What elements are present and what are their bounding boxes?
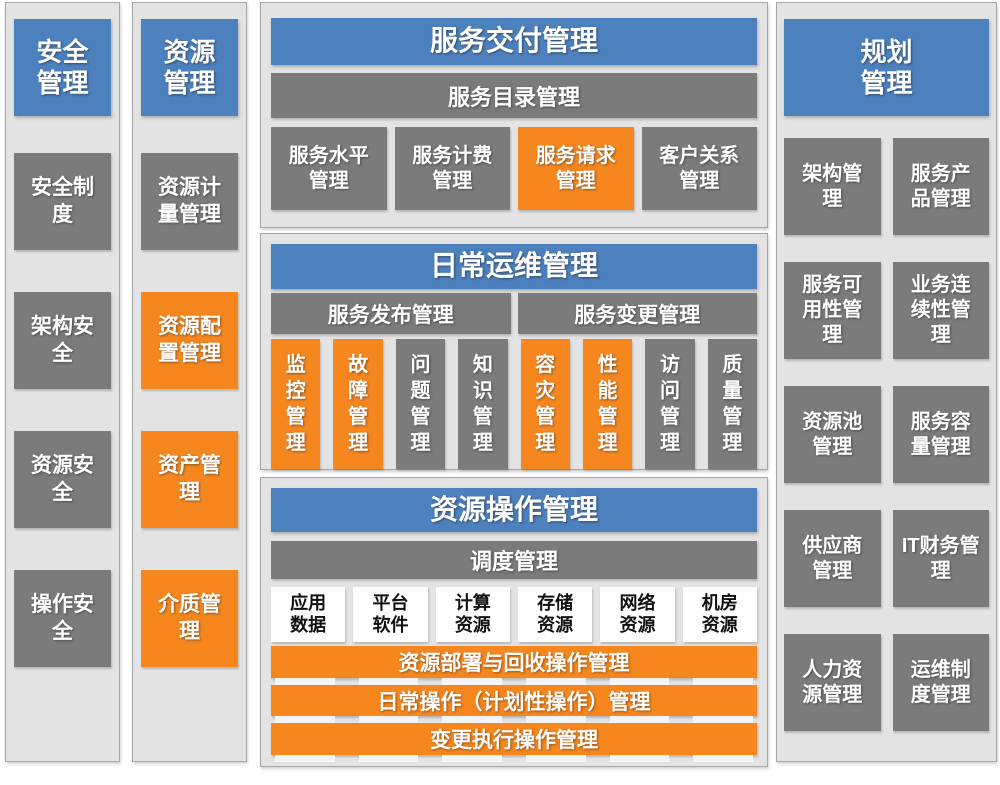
box-network-resource: 网络资源 <box>600 587 674 642</box>
box-resource-metering: 资源计量管理 <box>141 153 238 250</box>
box-problem-label: 问题管理 <box>410 352 431 456</box>
box-asset-management: 资产管理 <box>141 431 238 528</box>
bar-service-catalog: 服务目录管理 <box>271 73 757 118</box>
box-disaster-recovery: 容灾管理 <box>521 339 570 469</box>
panel-security: 安全管理 安全制度 架构安全 资源安全 操作安全 <box>5 2 120 762</box>
box-resource-pool: 资源池管理 <box>784 386 881 483</box>
box-business-continuity: 业务连续性管理 <box>893 262 990 359</box>
box-resource-security: 资源安全 <box>14 431 111 528</box>
box-architecture-security: 架构安全 <box>14 292 111 389</box>
box-datacenter-resource: 机房资源 <box>683 587 757 642</box>
service-delivery-header: 服务交付管理 <box>271 18 757 65</box>
separator-strip <box>275 716 753 723</box>
box-disaster-recovery-label: 容灾管理 <box>535 352 556 456</box>
box-app-data: 应用数据 <box>271 587 345 642</box>
box-compute-resource: 计算资源 <box>436 587 510 642</box>
box-monitoring: 监控管理 <box>271 339 320 469</box>
planning-header-label: 规划管理 <box>859 37 915 98</box>
box-storage-resource: 存储资源 <box>518 587 592 642</box>
resource-ops-header: 资源操作管理 <box>271 488 757 532</box>
box-it-finance: IT财务管理 <box>893 510 990 607</box>
box-service-level: 服务水平管理 <box>271 127 387 210</box>
separator-strip <box>275 678 753 685</box>
box-quality-label: 质量管理 <box>722 352 743 456</box>
resource-header: 资源管理 <box>141 19 238 116</box>
bar-daily-planned-ops: 日常操作（计划性操作）管理 <box>271 685 757 716</box>
box-customer-relation: 客户关系管理 <box>642 127 758 210</box>
box-quality: 质量管理 <box>708 339 757 469</box>
bar-deploy-recycle-ops: 资源部署与回收操作管理 <box>271 646 757 678</box>
box-service-product: 服务产品管理 <box>893 138 990 235</box>
daily-ops-header: 日常运维管理 <box>271 244 757 289</box>
box-security-policy: 安全制度 <box>14 153 111 250</box>
box-service-request: 服务请求管理 <box>518 127 634 210</box>
box-problem: 问题管理 <box>396 339 445 469</box>
box-service-capacity: 服务容量管理 <box>893 386 990 483</box>
box-human-resource: 人力资源管理 <box>784 634 881 731</box>
bar-release-management: 服务发布管理 <box>271 293 511 334</box>
bar-schedule-management: 调度管理 <box>271 541 757 579</box>
box-resource-config: 资源配置管理 <box>141 292 238 389</box>
box-service-billing: 服务计费管理 <box>395 127 511 210</box>
box-access: 访问管理 <box>645 339 694 469</box>
box-monitoring-label: 监控管理 <box>285 352 306 456</box>
box-operation-security: 操作安全 <box>14 570 111 667</box>
box-access-label: 访问管理 <box>659 352 680 456</box>
panel-daily-ops: 日常运维管理 服务发布管理 服务变更管理 监控管理 故障管理 问题管理 知识管理… <box>260 233 768 470</box>
box-knowledge: 知识管理 <box>458 339 507 469</box>
panel-resource-ops: 资源操作管理 调度管理 应用数据 平台软件 计算资源 存储资源 网络资源 机房资… <box>260 477 768 767</box>
box-knowledge-label: 知识管理 <box>472 352 493 456</box>
resource-header-label: 资源管理 <box>162 37 218 98</box>
bar-change-management: 服务变更管理 <box>518 293 758 334</box>
box-platform-software: 平台软件 <box>353 587 427 642</box>
security-header: 安全管理 <box>14 19 111 116</box>
bar-change-exec-ops: 变更执行操作管理 <box>271 723 757 755</box>
planning-header: 规划管理 <box>784 19 989 116</box>
panel-resource: 资源管理 资源计量管理 资源配置管理 资产管理 介质管理 <box>132 2 247 762</box>
box-fault-label: 故障管理 <box>348 352 369 456</box>
separator-strip <box>275 755 753 762</box>
box-architecture-mgmt: 架构管理 <box>784 138 881 235</box>
box-ops-regulation: 运维制度管理 <box>893 634 990 731</box>
box-service-availability: 服务可用性管理 <box>784 262 881 359</box>
security-header-label: 安全管理 <box>35 37 91 98</box>
panel-service-delivery: 服务交付管理 服务目录管理 服务水平管理 服务计费管理 服务请求管理 客户关系管… <box>260 2 768 228</box>
box-performance: 性能管理 <box>583 339 632 469</box>
box-performance-label: 性能管理 <box>597 352 618 456</box>
box-supplier-mgmt: 供应商管理 <box>784 510 881 607</box>
panel-planning: 规划管理 架构管理 服务产品管理 服务可用性管理 业务连续性管理 资源池管理 服… <box>776 2 997 762</box>
box-media-management: 介质管理 <box>141 570 238 667</box>
box-fault: 故障管理 <box>333 339 382 469</box>
